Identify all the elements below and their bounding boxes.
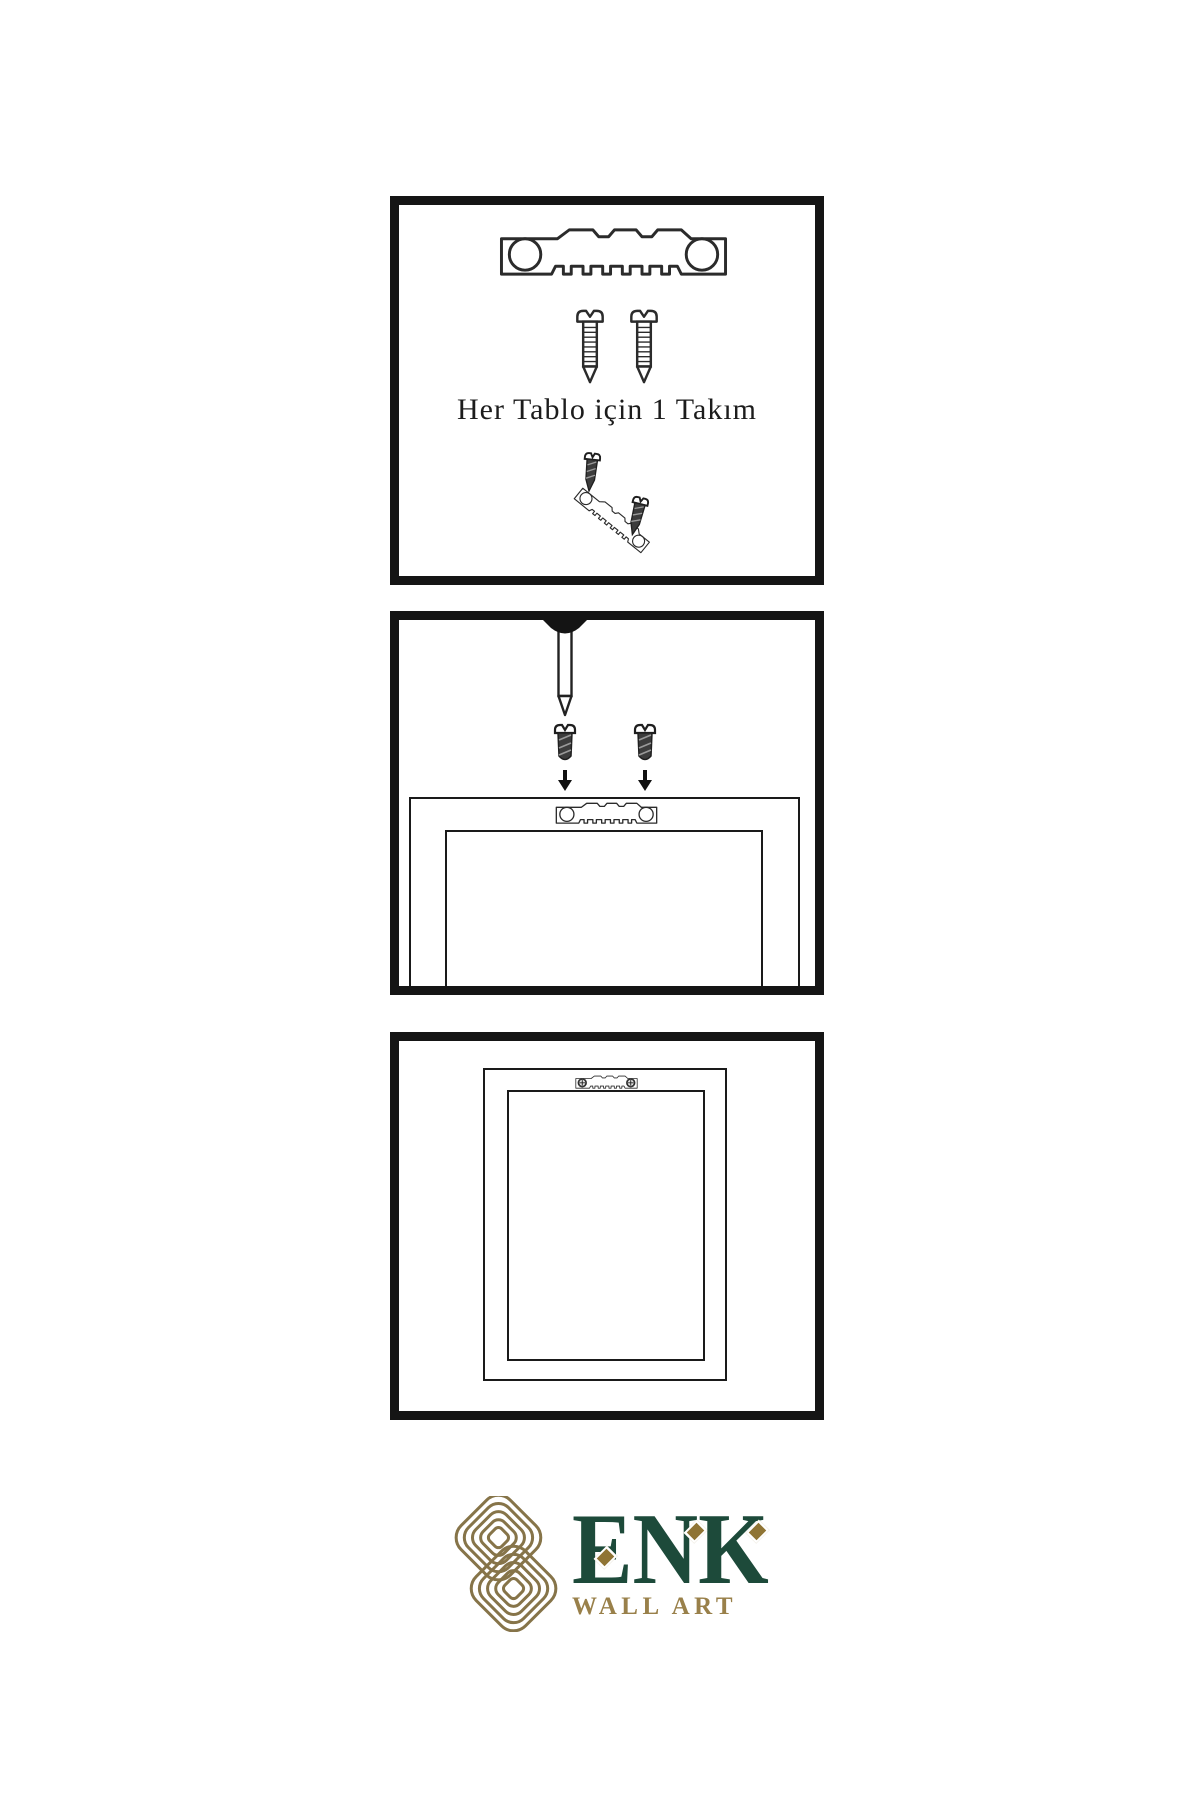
brand-subtitle: WALL ART [572, 1593, 737, 1621]
step3-panel [390, 1032, 824, 1420]
frame-back-inner [507, 1090, 705, 1361]
arrow-down-icon [637, 770, 653, 792]
step2-panel [390, 611, 824, 995]
screw-icon [627, 307, 661, 385]
sawtooth-hanger-installed-icon [575, 1072, 638, 1092]
step1-panel: Her Tablo için 1 Takım [390, 196, 824, 585]
screw-icon [573, 307, 607, 385]
arrow-down-icon [557, 770, 573, 792]
screw-icon [552, 722, 578, 768]
sawtooth-hanger-icon [497, 223, 730, 280]
sawtooth-hanger-icon [555, 800, 658, 826]
knot-logo-icon [440, 1496, 572, 1632]
kit-caption: Her Tablo için 1 Takım [399, 393, 815, 427]
screw-icon [632, 722, 658, 768]
frame-back-inner [445, 830, 763, 995]
wall-nail-icon [542, 620, 588, 718]
